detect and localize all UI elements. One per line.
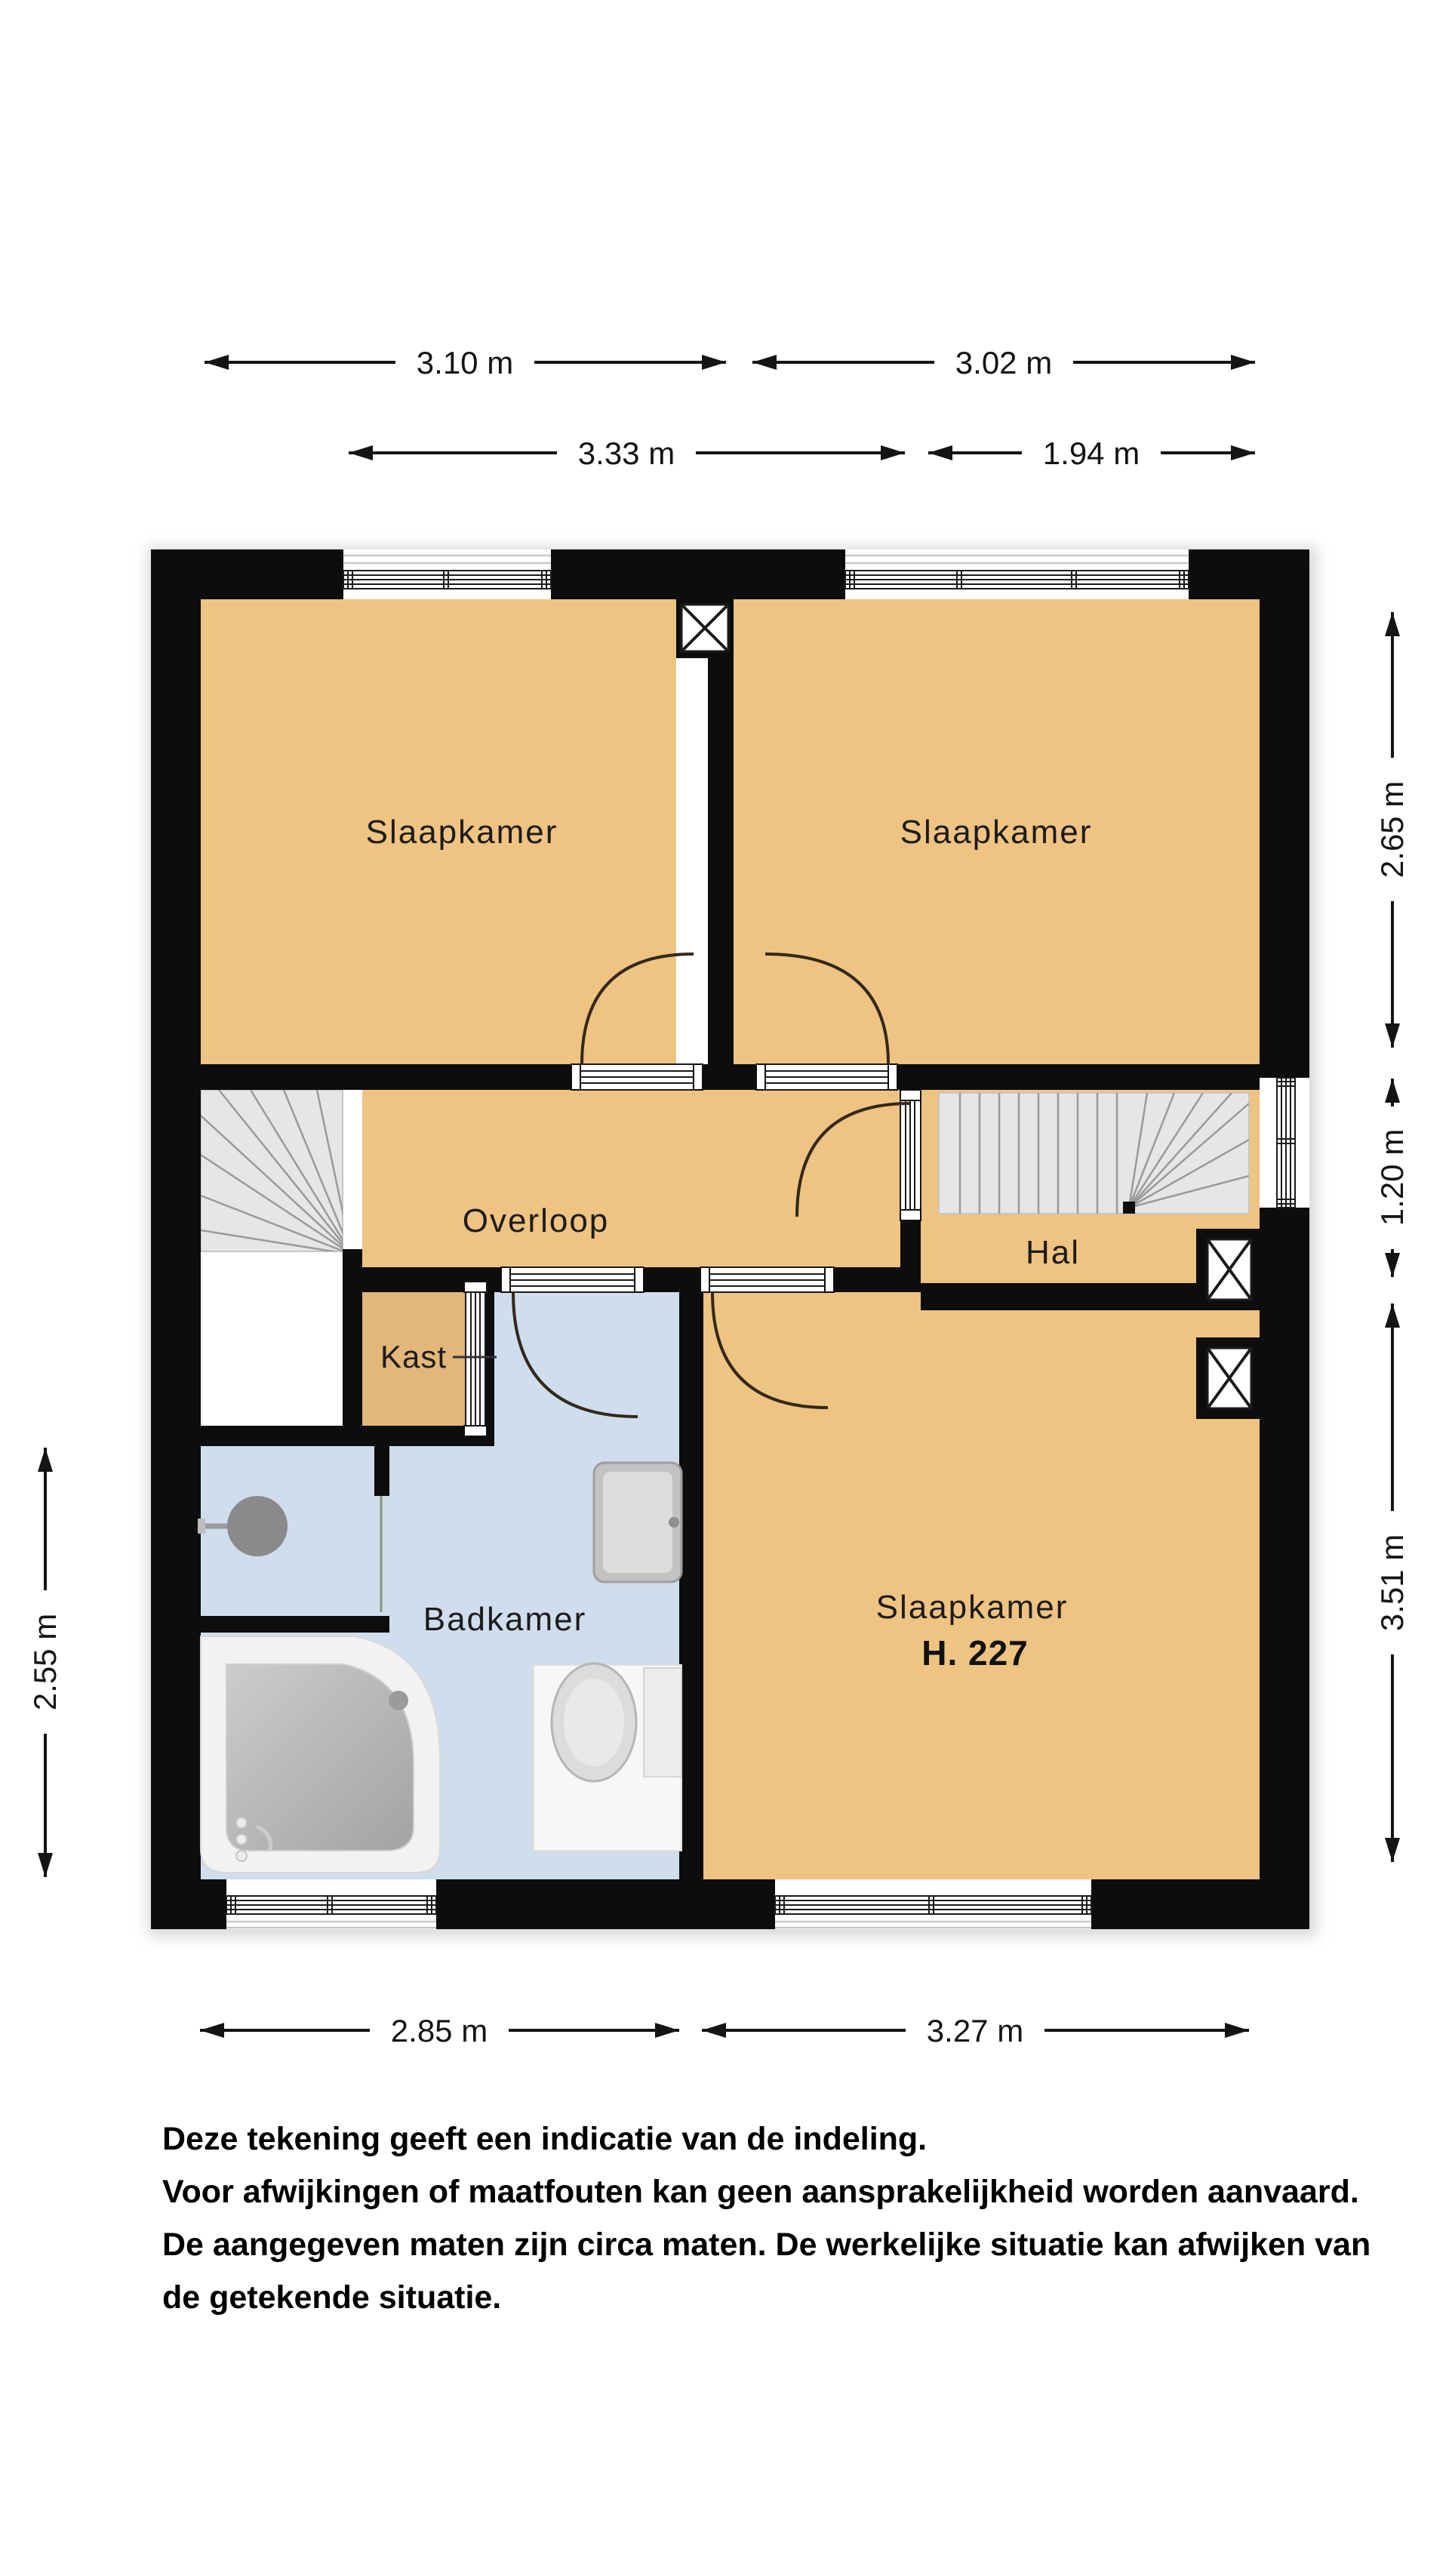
wall-bedrooms-landing	[201, 1064, 1260, 1090]
duct-box-lower	[1207, 1348, 1251, 1408]
toilet	[534, 1663, 681, 1851]
label-hal: Hal	[1026, 1234, 1080, 1271]
svg-text:2.85 m: 2.85 m	[391, 2013, 488, 2048]
staircase-right	[939, 1093, 1249, 1214]
svg-text:3.27 m: 3.27 m	[927, 2013, 1023, 2048]
label-bedroom-top-right: Slaapkamer	[900, 814, 1093, 851]
label-kast: Kast	[380, 1339, 447, 1374]
room-overloop-floor	[362, 1090, 900, 1267]
vent-box-bedroom-divider	[681, 605, 728, 651]
bathtub	[201, 1636, 440, 1873]
wall-under-stairwell	[201, 1426, 494, 1446]
floor-plan-drawing: Slaapkamer Slaapkamer Overloop Hal Kast …	[0, 0, 1449, 2576]
door-kast	[464, 1282, 487, 1436]
wall-exterior-right	[1260, 549, 1309, 1929]
staircase-left	[201, 1090, 352, 1254]
wall-badkamer-bedroom	[679, 1292, 703, 1879]
label-bedroom-bottom-right: Slaapkamer	[876, 1589, 1069, 1626]
bathtub-tap	[236, 1851, 247, 1861]
window-bottom-bedroom	[775, 1879, 1091, 1929]
wall-bedroom-divider	[708, 658, 734, 1064]
window-right-hal	[1260, 1078, 1309, 1208]
wall-kast-right-jamb	[485, 1292, 494, 1426]
label-bedroom-top-left: Slaapkamer	[366, 814, 558, 851]
dimension-right-bottom: 3.51 m	[1374, 1303, 1410, 1862]
bathtub-tap	[236, 1834, 247, 1845]
stair-newel-post	[1123, 1202, 1135, 1214]
label-bedroom-number: H. 227	[921, 1633, 1029, 1673]
disclaimer-line-1: Deze tekening geeft een indicatie van de…	[162, 2121, 927, 2157]
dimension-top-row2-left: 3.33 m	[349, 435, 905, 471]
disclaimer-line-4: de getekende situatie.	[162, 2279, 501, 2316]
disclaimer-line-2: Voor afwijkingen of maatfouten kan geen …	[162, 2174, 1359, 2210]
duct-box-upper	[1207, 1239, 1251, 1300]
toilet-cistern	[644, 1668, 681, 1777]
label-overloop: Overloop	[463, 1202, 610, 1239]
stair-left-stringer	[343, 1090, 362, 1249]
dimension-top-row2-right: 1.94 m	[928, 435, 1255, 471]
dimension-right-middle: 1.20 m	[1374, 1079, 1410, 1277]
svg-text:2.65 m: 2.65 m	[1374, 781, 1410, 878]
dimension-left-side: 2.55 m	[27, 1448, 63, 1877]
stairwell-void	[201, 1251, 343, 1429]
dimension-right-top: 2.65 m	[1374, 612, 1410, 1048]
dimension-bottom-left: 2.85 m	[200, 2013, 679, 2048]
svg-text:2.55 m: 2.55 m	[27, 1614, 63, 1710]
shower-mount	[198, 1519, 205, 1534]
sink-tap	[669, 1517, 679, 1528]
wall-shower-bottom	[201, 1616, 389, 1633]
floor-plan-page: Slaapkamer Slaapkamer Overloop Hal Kast …	[0, 0, 1449, 2576]
disclaimer-line-3: De aangegeven maten zijn circa maten. De…	[162, 2227, 1371, 2263]
bathtub-tap	[236, 1817, 247, 1828]
window-top-right	[845, 549, 1189, 599]
room-bedroom-bottom-right-floor	[703, 1292, 1260, 1879]
window-top-left	[343, 549, 551, 599]
dimension-bottom-right: 3.27 m	[702, 2013, 1249, 2048]
svg-text:3.51 m: 3.51 m	[1374, 1534, 1410, 1631]
svg-text:3.10 m: 3.10 m	[417, 345, 513, 380]
shower-head-icon	[227, 1496, 288, 1556]
wall-shower-stub	[374, 1446, 389, 1496]
wall-exterior-left	[151, 549, 201, 1929]
bathtub-drain	[389, 1691, 408, 1710]
svg-text:1.20 m: 1.20 m	[1374, 1129, 1410, 1226]
svg-text:3.33 m: 3.33 m	[578, 435, 675, 471]
dimension-top-row1-right: 3.02 m	[752, 345, 1255, 380]
window-bottom-badkamer	[226, 1879, 436, 1929]
sink	[594, 1463, 681, 1582]
dimension-top-row1-left: 3.10 m	[205, 345, 726, 380]
svg-text:1.94 m: 1.94 m	[1043, 435, 1140, 471]
svg-text:3.02 m: 3.02 m	[955, 345, 1052, 380]
label-badkamer: Badkamer	[423, 1601, 587, 1638]
disclaimer: Deze tekening geeft een indicatie van de…	[162, 2121, 1371, 2316]
